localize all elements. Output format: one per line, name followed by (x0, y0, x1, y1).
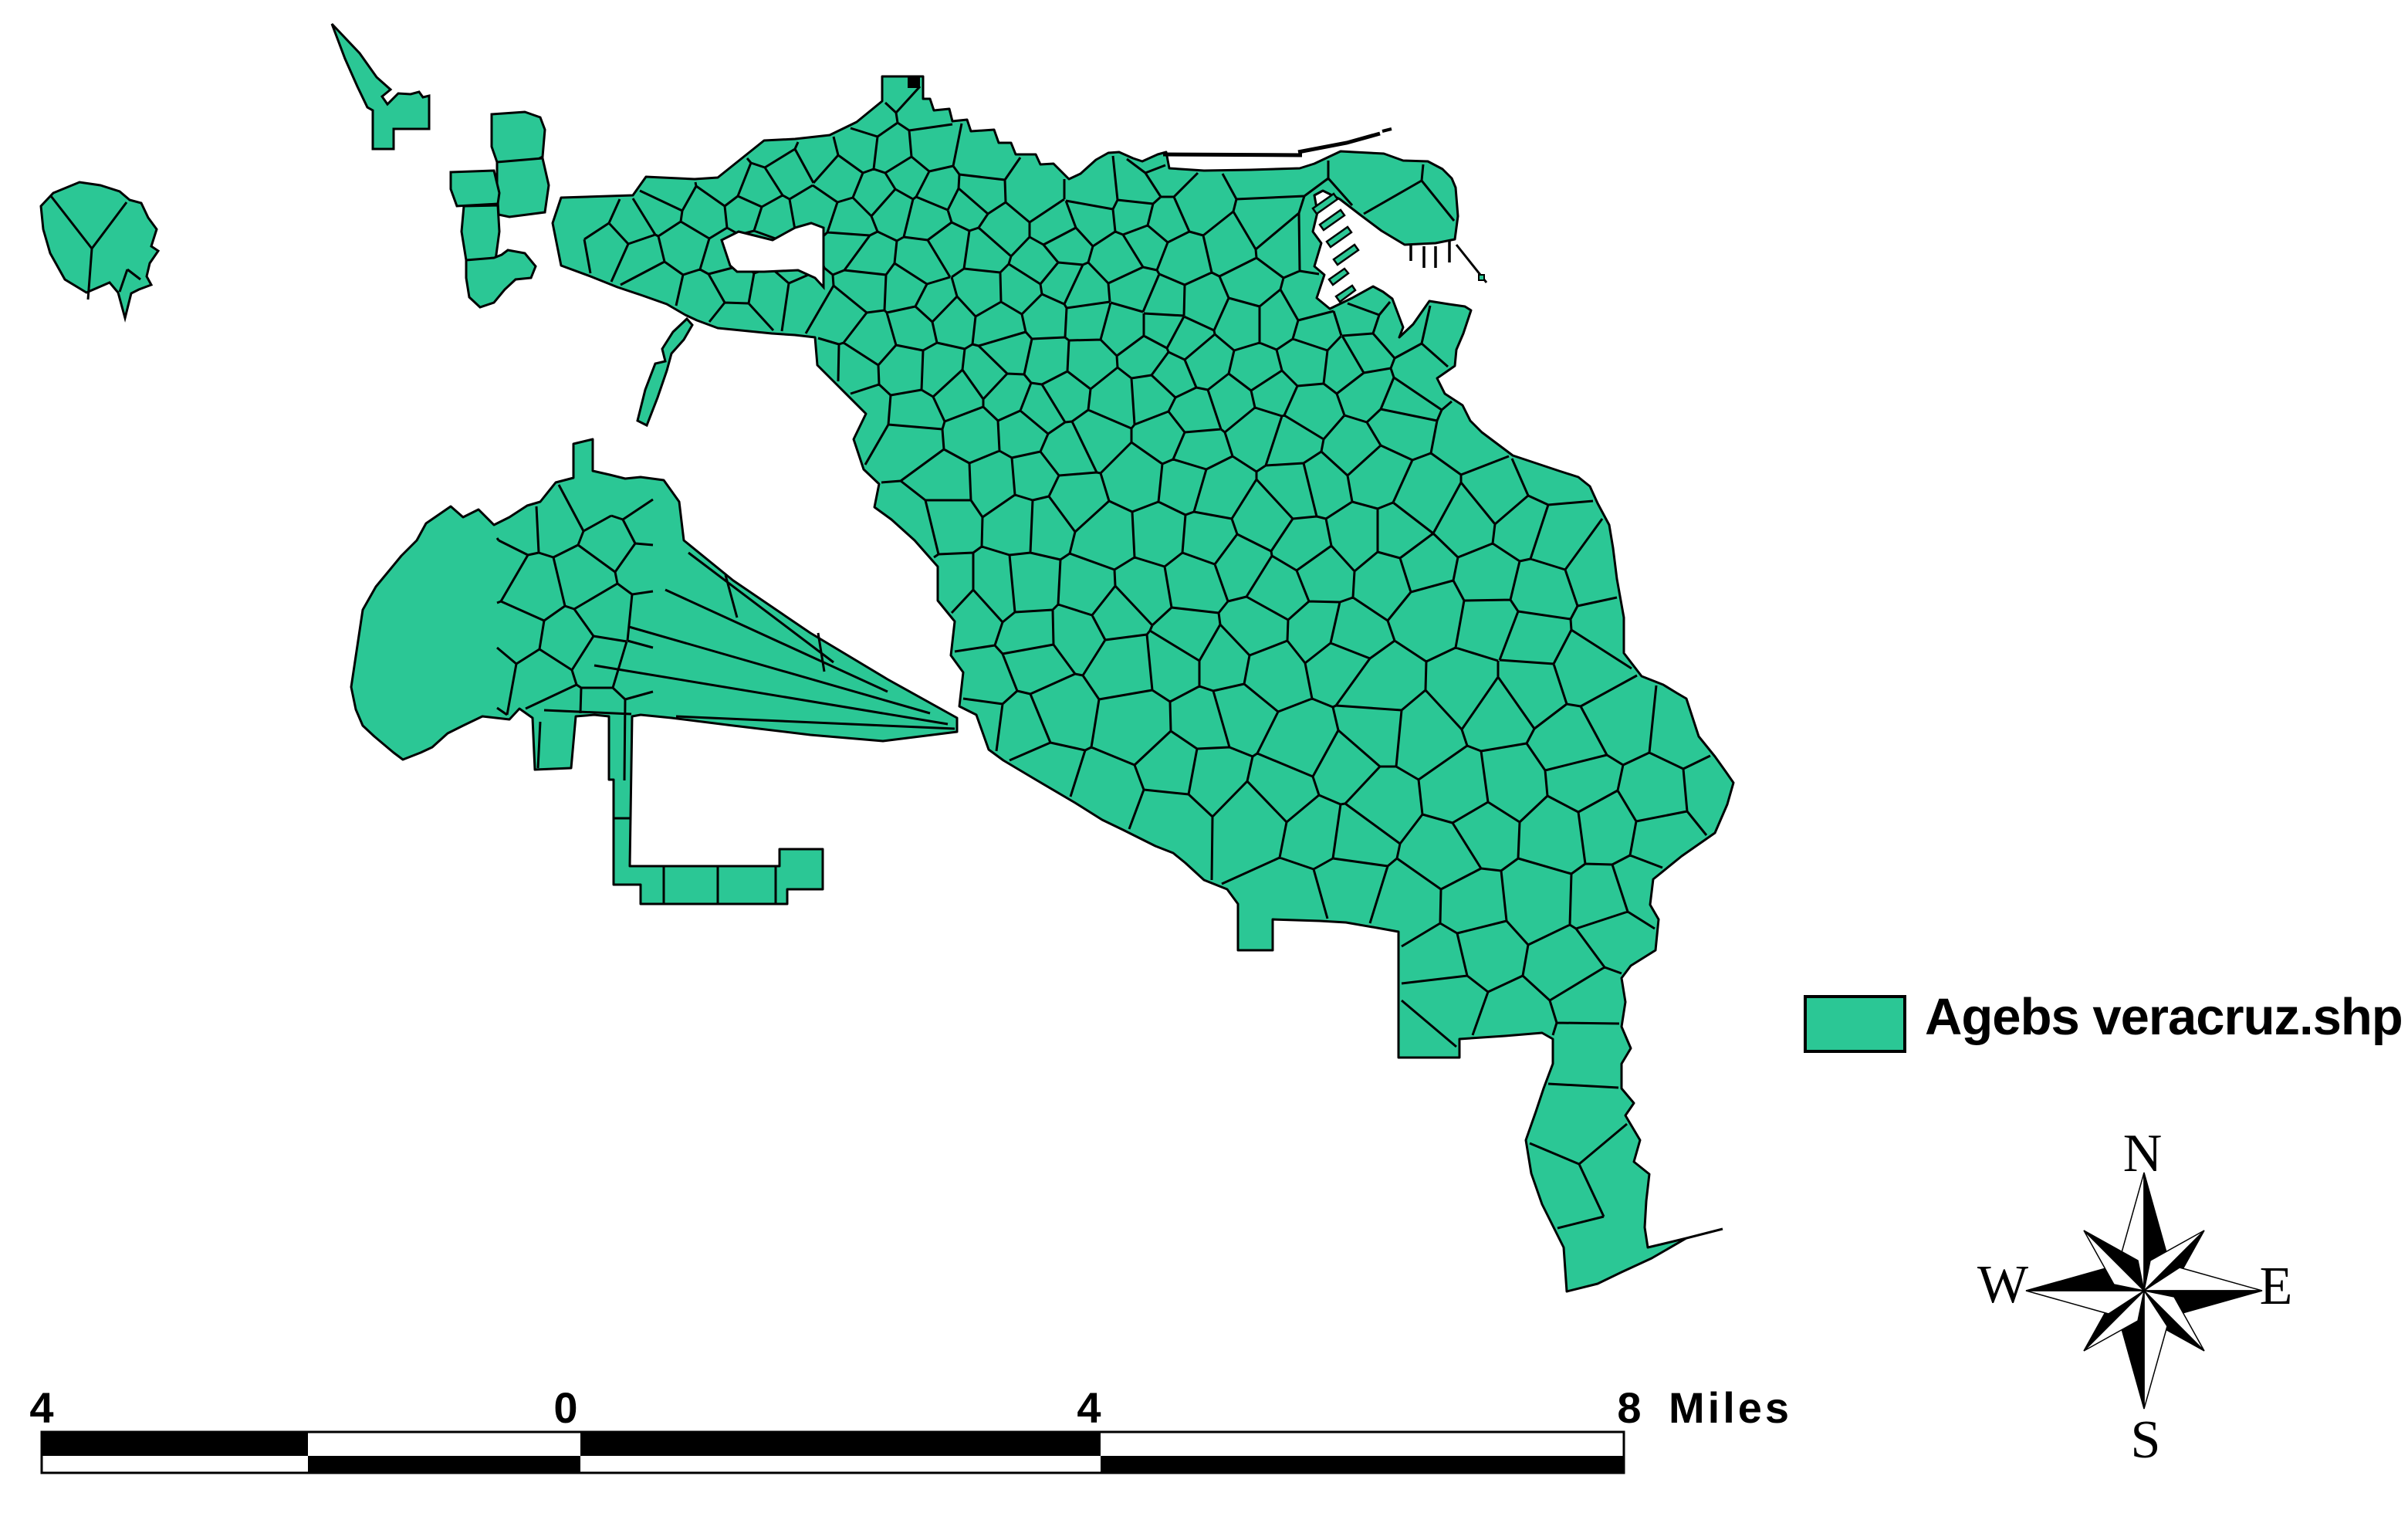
svg-text:4: 4 (1077, 1383, 1101, 1432)
svg-text:Miles: Miles (1669, 1383, 1792, 1432)
svg-text:S: S (2131, 1410, 2161, 1470)
svg-text:0: 0 (553, 1383, 577, 1432)
svg-text:W: W (1977, 1255, 2028, 1315)
svg-text:E: E (2260, 1257, 2293, 1316)
svg-text:Agebs veracruz.shp: Agebs veracruz.shp (1925, 988, 2403, 1046)
svg-text:N: N (2123, 1124, 2163, 1183)
svg-text:8: 8 (1617, 1383, 1641, 1432)
svg-text:4: 4 (29, 1383, 53, 1432)
